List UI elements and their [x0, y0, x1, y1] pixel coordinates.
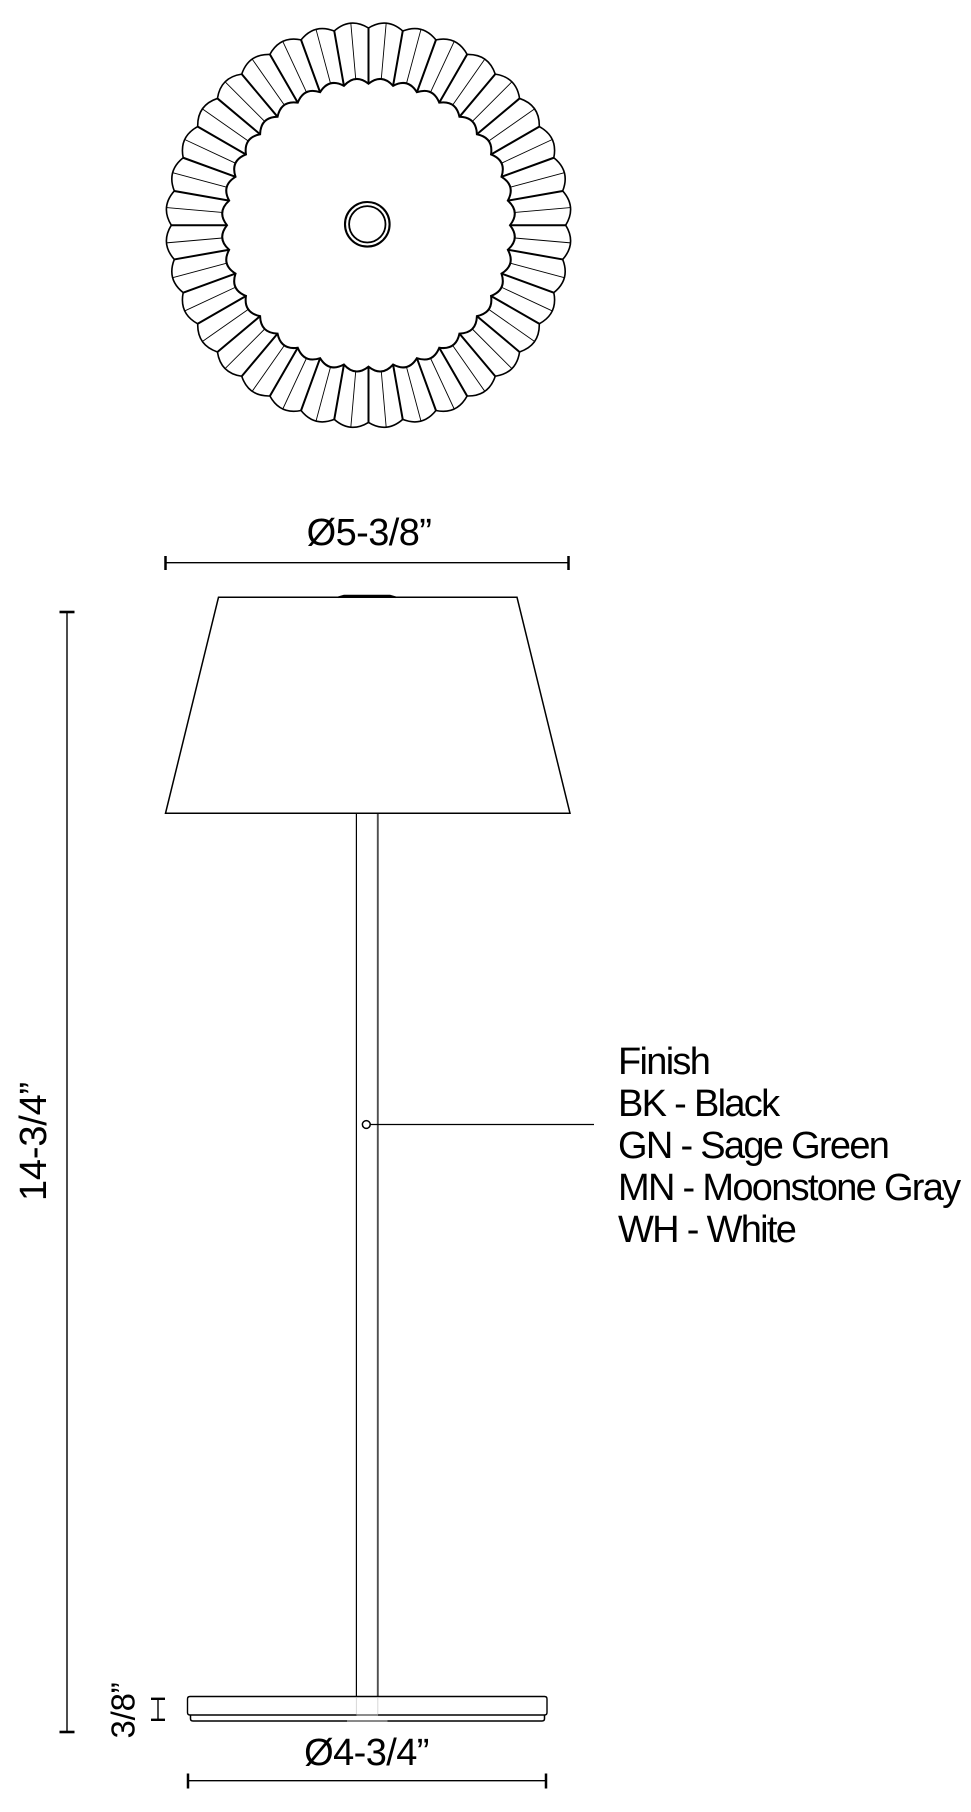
svg-text:GN - Sage Green: GN - Sage Green — [618, 1125, 888, 1167]
svg-text:Ø5-3/8”: Ø5-3/8” — [307, 512, 432, 554]
svg-text:MN - Moonstone Gray: MN - Moonstone Gray — [618, 1167, 961, 1209]
svg-text:3/8”: 3/8” — [105, 1682, 142, 1738]
svg-text:14-3/4”: 14-3/4” — [13, 1082, 55, 1201]
svg-text:Ø4-3/4”: Ø4-3/4” — [304, 1732, 429, 1774]
svg-text:BK - Black: BK - Black — [618, 1083, 781, 1125]
svg-text:Finish: Finish — [618, 1041, 709, 1083]
svg-text:WH - White: WH - White — [618, 1209, 796, 1251]
